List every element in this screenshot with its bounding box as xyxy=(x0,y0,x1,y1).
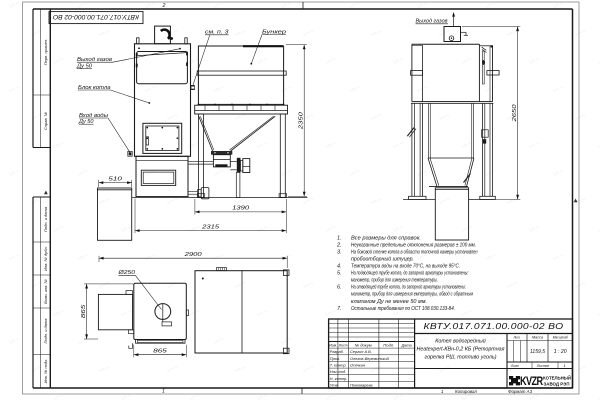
svg-text:Лист: Лист xyxy=(338,344,348,348)
svg-text:Масса: Масса xyxy=(532,336,543,340)
svg-text:865: 865 xyxy=(81,303,87,318)
svg-text:2650: 2650 xyxy=(512,104,518,122)
svg-text:2350: 2350 xyxy=(298,112,304,130)
svg-text:Взам. инв. №: Взам. инв. № xyxy=(43,278,48,303)
svg-text:пробоотборный штуцер.: пробоотборный штуцер. xyxy=(351,255,414,262)
svg-text:Пров.: Пров. xyxy=(330,356,340,361)
svg-text:Пономарева: Пономарева xyxy=(350,383,373,388)
svg-text:1159,5: 1159,5 xyxy=(530,349,545,355)
svg-text:KVZR: KVZR xyxy=(520,376,544,388)
svg-text:Сергин А.В.: Сергин А.В. xyxy=(350,349,372,354)
svg-text:Подп. и дата: Подп. и дата xyxy=(43,206,48,232)
svg-text:На боковой стенке котла в обла: На боковой стенке котла в области топочн… xyxy=(351,248,478,255)
svg-text:6.: 6. xyxy=(337,285,342,291)
svg-text:1.: 1. xyxy=(337,235,342,241)
svg-text:Дата: Дата xyxy=(401,344,412,348)
svg-text:манометр, прибор для измерения: манометр, прибор для измерения емператур… xyxy=(351,292,473,298)
svg-text:Подп. и дата: Подп. и дата xyxy=(43,318,48,344)
svg-text:горелка РШ, топливо уголь): горелка РШ, топливо уголь) xyxy=(425,355,497,361)
svg-text:Формат А3: Формат А3 xyxy=(508,389,533,394)
svg-text:манометр, прибор для измерения: манометр, прибор для измерения температу… xyxy=(351,278,438,284)
svg-text:Лист: Лист xyxy=(510,364,519,368)
svg-text:Подп.: Подп. xyxy=(383,344,394,348)
svg-text:865: 865 xyxy=(153,349,168,355)
svg-text:Осечкин: Осечкин xyxy=(350,363,366,368)
svg-text:клапаном Ду не менее 50 мм.: клапаном Ду не менее 50 мм. xyxy=(351,299,427,305)
svg-text:5.: 5. xyxy=(337,271,342,277)
svg-text:КВТУ.017.071.00.000-02 ВО: КВТУ.017.071.00.000-02 ВО xyxy=(424,322,564,331)
svg-text:Олегов-Вережинский: Олегов-Вережинский xyxy=(350,356,390,361)
svg-text:1390: 1390 xyxy=(232,206,249,212)
svg-text:Инв. № подл.: Инв. № подл. xyxy=(43,359,48,384)
svg-text:2.: 2. xyxy=(336,242,342,248)
svg-text:Изм.: Изм. xyxy=(329,344,337,348)
svg-text:1 : 20: 1 : 20 xyxy=(554,349,567,355)
svg-text:На отводящей трубе котла, до з: На отводящей трубе котла, до запорной ар… xyxy=(351,284,466,291)
svg-text:2315: 2315 xyxy=(201,224,221,230)
svg-text:Справ. №: Справ. № xyxy=(43,111,48,130)
svg-text:Т. контр.: Т. контр. xyxy=(330,363,347,368)
svg-text:Перв. примен.: Перв. примен. xyxy=(43,39,48,66)
svg-text:Нач.отд.: Нач.отд. xyxy=(330,369,346,374)
svg-text:На подводящей трубе котла, до: На подводящей трубе котла, до запорной а… xyxy=(351,270,469,277)
svg-text:Масштаб: Масштаб xyxy=(553,336,569,340)
svg-text:Инв. № дубл.: Инв. № дубл. xyxy=(43,246,48,271)
svg-text:Копировал: Копировал xyxy=(455,389,477,394)
svg-text:ЗАВОД РЭП: ЗАВОД РЭП xyxy=(544,381,570,386)
svg-text:№ докум.: № докум. xyxy=(355,344,373,348)
svg-text:4.: 4. xyxy=(337,264,342,270)
svg-text:Температура воды на входе 70°С: Температура воды на входе 70°С, на выход… xyxy=(351,264,460,270)
svg-text:Котел водогрейный: Котел водогрейный xyxy=(435,338,485,345)
svg-text:КОТЕЛЬНЫЙ: КОТЕЛЬНЫЙ xyxy=(543,375,571,380)
svg-text:Утв.: Утв. xyxy=(330,383,339,388)
svg-text:Листов: Листов xyxy=(536,364,549,368)
svg-text:7.: 7. xyxy=(337,306,342,312)
svg-text:КВТУ.017.071.00.000-02 ВО: КВТУ.017.071.00.000-02 ВО xyxy=(52,13,139,20)
svg-text:3.: 3. xyxy=(337,249,342,255)
svg-text:Остальные требования по ОСТ 10: Остальные требования по ОСТ 108.030.133-… xyxy=(351,306,455,312)
svg-text:1: 1 xyxy=(162,389,165,395)
svg-text:510: 510 xyxy=(108,176,122,182)
svg-text:Heatexpert-КВн-0,2 КБ (Ретортн: Heatexpert-КВн-0,2 КБ (Ретортная xyxy=(417,347,505,353)
svg-text:2: 2 xyxy=(162,3,166,9)
svg-text:2900: 2900 xyxy=(183,252,201,258)
svg-text:Лит.: Лит. xyxy=(513,336,521,340)
svg-text:Разраб.: Разраб. xyxy=(330,349,344,354)
svg-text:1: 1 xyxy=(563,364,565,368)
svg-text:Н. контр.: Н. контр. xyxy=(330,376,348,381)
svg-text:Неуказанные предельные отклоне: Неуказанные предельные отклонения размер… xyxy=(351,242,476,248)
svg-text:Все размеры для справок.: Все размеры для справок. xyxy=(351,235,421,241)
